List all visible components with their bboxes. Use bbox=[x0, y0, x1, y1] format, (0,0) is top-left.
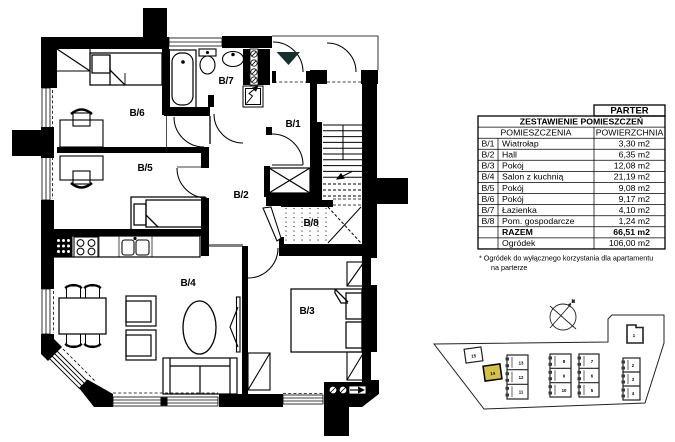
svg-text:13: 13 bbox=[519, 360, 524, 365]
svg-text:B/6: B/6 bbox=[481, 194, 494, 204]
svg-text:PARTER: PARTER bbox=[610, 106, 648, 117]
svg-text:B/1: B/1 bbox=[286, 119, 302, 130]
svg-text:POMIESZCZENIA: POMIESZCZENIA bbox=[501, 127, 572, 137]
svg-text:POWIERZCHNIA: POWIERZCHNIA bbox=[596, 127, 664, 137]
svg-text:9,08 m2: 9,08 m2 bbox=[619, 183, 651, 193]
svg-text:10: 10 bbox=[562, 388, 567, 393]
svg-text:Pokój: Pokój bbox=[502, 194, 524, 204]
svg-text:21,19 m2: 21,19 m2 bbox=[614, 172, 650, 182]
svg-text:Ogródek: Ogródek bbox=[502, 238, 536, 248]
svg-text:12,08 m2: 12,08 m2 bbox=[614, 161, 650, 171]
svg-text:B/6: B/6 bbox=[130, 108, 146, 119]
svg-text:N: N bbox=[572, 300, 575, 304]
svg-text:na parterze: na parterze bbox=[491, 263, 527, 272]
svg-text:RAZEM: RAZEM bbox=[502, 227, 533, 237]
svg-text:12: 12 bbox=[519, 375, 524, 380]
svg-text:B/4: B/4 bbox=[181, 278, 197, 289]
svg-text:B/1: B/1 bbox=[481, 138, 494, 148]
svg-text:Wiatrołap: Wiatrołap bbox=[502, 138, 539, 148]
svg-text:B/7: B/7 bbox=[481, 205, 494, 215]
svg-text:Pokój: Pokój bbox=[502, 183, 524, 193]
svg-text:B/8: B/8 bbox=[304, 218, 320, 229]
svg-text:* Ogródek do wyłącznego korzys: * Ogródek do wyłącznego korzystania dla … bbox=[479, 254, 653, 263]
svg-text:B/2: B/2 bbox=[481, 150, 494, 160]
svg-text:B/5: B/5 bbox=[481, 183, 494, 193]
svg-text:1,24 m2: 1,24 m2 bbox=[619, 216, 651, 226]
svg-text:B/3: B/3 bbox=[300, 306, 316, 317]
svg-text:B/7: B/7 bbox=[219, 76, 235, 87]
svg-text:Pokój: Pokój bbox=[502, 161, 524, 171]
svg-text:6,35 m2: 6,35 m2 bbox=[619, 150, 651, 160]
svg-text:ZESTAWIENIE POMIESZCZEŃ: ZESTAWIENIE POMIESZCZEŃ bbox=[520, 116, 643, 126]
svg-text:Łazienka: Łazienka bbox=[502, 205, 537, 215]
svg-text:4,10 m2: 4,10 m2 bbox=[619, 205, 651, 215]
svg-text:11: 11 bbox=[519, 390, 524, 395]
svg-text:B/2: B/2 bbox=[234, 190, 250, 201]
svg-text:B/8: B/8 bbox=[481, 216, 494, 226]
svg-text:Hall: Hall bbox=[502, 150, 517, 160]
svg-text:106,00 m2: 106,00 m2 bbox=[609, 238, 650, 248]
svg-text:Salon z kuchnią: Salon z kuchnią bbox=[502, 172, 564, 182]
svg-text:Pom. gospodarcze: Pom. gospodarcze bbox=[502, 216, 575, 226]
svg-text:B/4: B/4 bbox=[481, 172, 494, 182]
svg-text:B/5: B/5 bbox=[138, 163, 154, 174]
svg-text:9,17 m2: 9,17 m2 bbox=[619, 194, 651, 204]
svg-text:B/3: B/3 bbox=[481, 161, 494, 171]
svg-text:66,51 m2: 66,51 m2 bbox=[613, 227, 650, 237]
svg-text:3,30 m2: 3,30 m2 bbox=[619, 138, 651, 148]
